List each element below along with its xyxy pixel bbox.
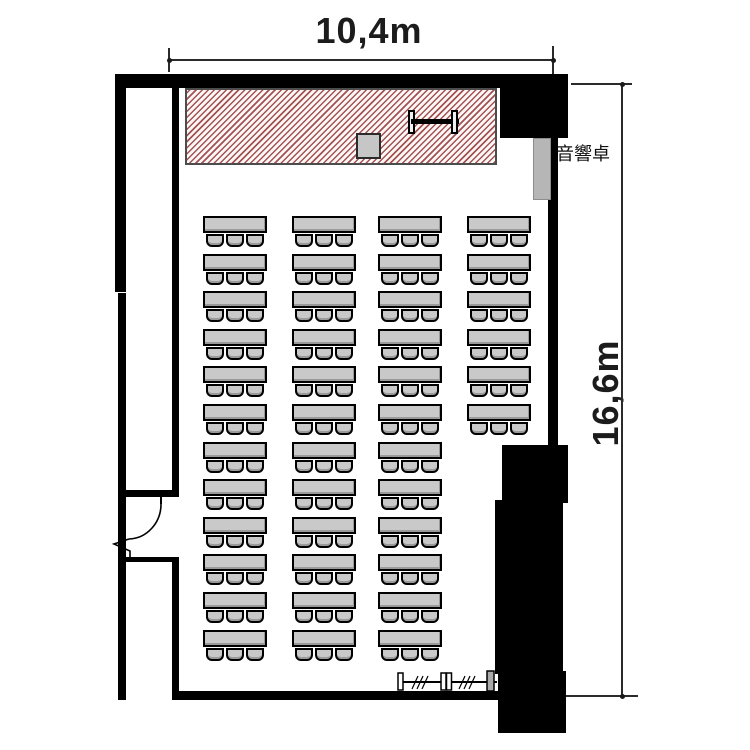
desk — [378, 517, 442, 534]
chair — [295, 535, 313, 548]
chair — [510, 272, 528, 285]
chair — [381, 535, 399, 548]
desk-unit — [292, 329, 356, 360]
desk-unit — [378, 254, 442, 285]
chair — [246, 572, 264, 585]
desk — [378, 479, 442, 496]
chair — [226, 309, 244, 322]
chair — [246, 648, 264, 661]
desk — [203, 630, 267, 647]
chair — [315, 422, 333, 435]
chair — [206, 497, 224, 510]
chair — [206, 234, 224, 247]
chair — [381, 572, 399, 585]
chair — [470, 422, 488, 435]
chair — [206, 309, 224, 322]
chair — [401, 384, 419, 397]
chair — [335, 272, 353, 285]
desk — [292, 366, 356, 383]
desk-unit — [203, 479, 267, 510]
chair — [226, 234, 244, 247]
desk — [292, 216, 356, 233]
dimension-width-label: 10,4m — [304, 10, 434, 52]
chair — [295, 272, 313, 285]
dimension-dot-icon — [551, 58, 556, 63]
desk-unit — [203, 592, 267, 623]
desk — [292, 554, 356, 571]
chair — [401, 535, 419, 548]
chair — [470, 234, 488, 247]
desk — [378, 329, 442, 346]
chair — [315, 460, 333, 473]
chair — [335, 497, 353, 510]
chair — [226, 610, 244, 623]
chair — [246, 234, 264, 247]
chair — [226, 347, 244, 360]
chair — [381, 460, 399, 473]
desk-unit — [203, 630, 267, 661]
chair — [401, 272, 419, 285]
wall-left-outer — [115, 74, 126, 292]
chair — [490, 234, 508, 247]
chair — [206, 648, 224, 661]
desk — [378, 554, 442, 571]
desk — [292, 254, 356, 271]
chair — [421, 347, 439, 360]
chair — [206, 347, 224, 360]
desk-unit — [292, 366, 356, 397]
chair — [335, 422, 353, 435]
chair — [206, 272, 224, 285]
chair — [315, 497, 333, 510]
desk — [203, 404, 267, 421]
chair — [246, 309, 264, 322]
chair — [335, 535, 353, 548]
chair — [226, 535, 244, 548]
desk — [378, 291, 442, 308]
desk-unit — [292, 216, 356, 247]
desk-unit — [378, 592, 442, 623]
movable-partition-icon — [393, 666, 505, 696]
wall-pillar-right — [502, 445, 568, 503]
desk — [378, 366, 442, 383]
desk — [203, 366, 267, 383]
chair — [401, 347, 419, 360]
wall-pillar-right — [495, 500, 563, 674]
chair — [381, 234, 399, 247]
desk-unit — [292, 291, 356, 322]
desk-unit — [467, 404, 531, 435]
chair — [246, 497, 264, 510]
chair — [401, 460, 419, 473]
chair — [401, 234, 419, 247]
chair — [510, 384, 528, 397]
whiteboard-leg-icon — [451, 110, 458, 134]
desk — [292, 592, 356, 609]
dimension-dot-icon — [167, 58, 172, 63]
chair — [490, 347, 508, 360]
desk-unit — [378, 442, 442, 473]
podium-icon — [356, 133, 381, 159]
chair — [470, 309, 488, 322]
chair — [206, 422, 224, 435]
desk — [203, 554, 267, 571]
desk — [292, 404, 356, 421]
desk-unit — [203, 291, 267, 322]
desk-unit — [203, 254, 267, 285]
desk — [467, 366, 531, 383]
wall-left-inner — [172, 562, 179, 700]
chair — [315, 347, 333, 360]
chair — [246, 610, 264, 623]
desk — [378, 630, 442, 647]
chair — [421, 610, 439, 623]
chair — [315, 309, 333, 322]
desk — [203, 254, 267, 271]
chair — [335, 610, 353, 623]
desk-unit — [203, 554, 267, 585]
chair — [401, 648, 419, 661]
desk — [378, 442, 442, 459]
desk — [203, 291, 267, 308]
desk-unit — [467, 366, 531, 397]
chair — [490, 384, 508, 397]
chair — [335, 384, 353, 397]
desk-unit — [203, 366, 267, 397]
desk — [203, 479, 267, 496]
chair — [226, 497, 244, 510]
dimension-height-line — [621, 84, 623, 697]
desk-unit — [378, 329, 442, 360]
sound-console — [533, 138, 551, 200]
desk-unit — [203, 216, 267, 247]
desk-unit — [292, 404, 356, 435]
dimension-leader-line — [566, 695, 638, 697]
chair — [335, 460, 353, 473]
stage-area — [185, 88, 497, 165]
desk-unit — [467, 329, 531, 360]
chair — [315, 648, 333, 661]
desk — [292, 442, 356, 459]
desk — [292, 291, 356, 308]
chair — [421, 234, 439, 247]
chair — [295, 610, 313, 623]
desk — [467, 254, 531, 271]
chair — [401, 422, 419, 435]
chair — [315, 234, 333, 247]
desk-unit — [378, 479, 442, 510]
dimension-width-line — [169, 59, 553, 61]
desk-unit — [203, 442, 267, 473]
chair — [421, 497, 439, 510]
chair — [401, 610, 419, 623]
chair — [206, 572, 224, 585]
chair — [226, 460, 244, 473]
chair — [226, 384, 244, 397]
chair — [381, 648, 399, 661]
desk-unit — [292, 630, 356, 661]
desk-unit — [292, 479, 356, 510]
chair — [226, 572, 244, 585]
chair — [295, 234, 313, 247]
desk-unit — [203, 517, 267, 548]
sound-console-label: 音響卓 — [556, 140, 610, 166]
desk — [378, 404, 442, 421]
chair — [315, 610, 333, 623]
chair — [381, 347, 399, 360]
desk-unit — [292, 442, 356, 473]
desk — [203, 517, 267, 534]
desk-unit — [378, 517, 442, 548]
desk — [292, 479, 356, 496]
desk — [292, 517, 356, 534]
chair — [381, 610, 399, 623]
dimension-dot-icon — [620, 82, 625, 87]
dimension-dot-icon — [620, 694, 625, 699]
chair — [401, 572, 419, 585]
desk-unit — [467, 216, 531, 247]
chair — [226, 272, 244, 285]
chair — [315, 272, 333, 285]
wall-corner-block — [500, 74, 568, 138]
desk-unit — [292, 554, 356, 585]
chair — [421, 422, 439, 435]
desk-unit — [378, 630, 442, 661]
chair — [470, 384, 488, 397]
chair — [335, 648, 353, 661]
desk-unit — [203, 404, 267, 435]
chair — [381, 272, 399, 285]
chair — [490, 272, 508, 285]
desk-unit — [203, 329, 267, 360]
chair — [401, 309, 419, 322]
desk — [467, 329, 531, 346]
desk-unit — [467, 291, 531, 322]
chair — [226, 648, 244, 661]
chair — [295, 648, 313, 661]
chair — [381, 422, 399, 435]
chair — [246, 460, 264, 473]
chair — [421, 272, 439, 285]
desk — [378, 254, 442, 271]
desk — [203, 216, 267, 233]
chair — [206, 610, 224, 623]
chair — [381, 384, 399, 397]
wall-pillar-right — [498, 671, 566, 733]
desk — [467, 291, 531, 308]
chair — [206, 460, 224, 473]
chair — [421, 648, 439, 661]
desk — [292, 329, 356, 346]
desk-unit — [378, 404, 442, 435]
desk-unit — [378, 216, 442, 247]
chair — [510, 234, 528, 247]
chair — [490, 422, 508, 435]
wall-top — [118, 74, 555, 88]
chair — [295, 422, 313, 435]
chair — [315, 535, 333, 548]
chair — [335, 572, 353, 585]
chair — [206, 535, 224, 548]
chair — [470, 272, 488, 285]
desk — [203, 442, 267, 459]
chair — [295, 572, 313, 585]
chair — [315, 384, 333, 397]
desk-unit — [292, 517, 356, 548]
chair — [421, 535, 439, 548]
chair — [401, 497, 419, 510]
desk-unit — [292, 254, 356, 285]
chair — [295, 460, 313, 473]
floor-plan: 10,4m 16,6m 音響卓 — [0, 0, 750, 750]
chair — [246, 422, 264, 435]
chair — [381, 497, 399, 510]
chair — [246, 272, 264, 285]
desk — [203, 329, 267, 346]
desk-unit — [378, 366, 442, 397]
chair — [381, 309, 399, 322]
desk — [378, 216, 442, 233]
chair — [246, 535, 264, 548]
chair — [246, 384, 264, 397]
desk — [467, 216, 531, 233]
chair — [490, 309, 508, 322]
chair — [335, 309, 353, 322]
chair — [226, 422, 244, 435]
desk — [467, 404, 531, 421]
chair — [295, 309, 313, 322]
desk-unit — [378, 291, 442, 322]
chair — [295, 497, 313, 510]
desk-unit — [292, 592, 356, 623]
chair — [315, 572, 333, 585]
desk — [378, 592, 442, 609]
chair — [246, 347, 264, 360]
chair — [206, 384, 224, 397]
chair — [470, 347, 488, 360]
chair — [421, 309, 439, 322]
desk-unit — [378, 554, 442, 585]
chair — [421, 572, 439, 585]
chair — [510, 422, 528, 435]
chair — [335, 234, 353, 247]
door-swing-icon — [100, 488, 180, 568]
desk — [292, 630, 356, 647]
desk-unit — [467, 254, 531, 285]
chair — [510, 347, 528, 360]
desk — [203, 592, 267, 609]
chair — [295, 347, 313, 360]
chair — [421, 460, 439, 473]
wall-left-inner — [172, 88, 179, 497]
chair — [295, 384, 313, 397]
chair — [421, 384, 439, 397]
chair — [335, 347, 353, 360]
chair — [510, 309, 528, 322]
